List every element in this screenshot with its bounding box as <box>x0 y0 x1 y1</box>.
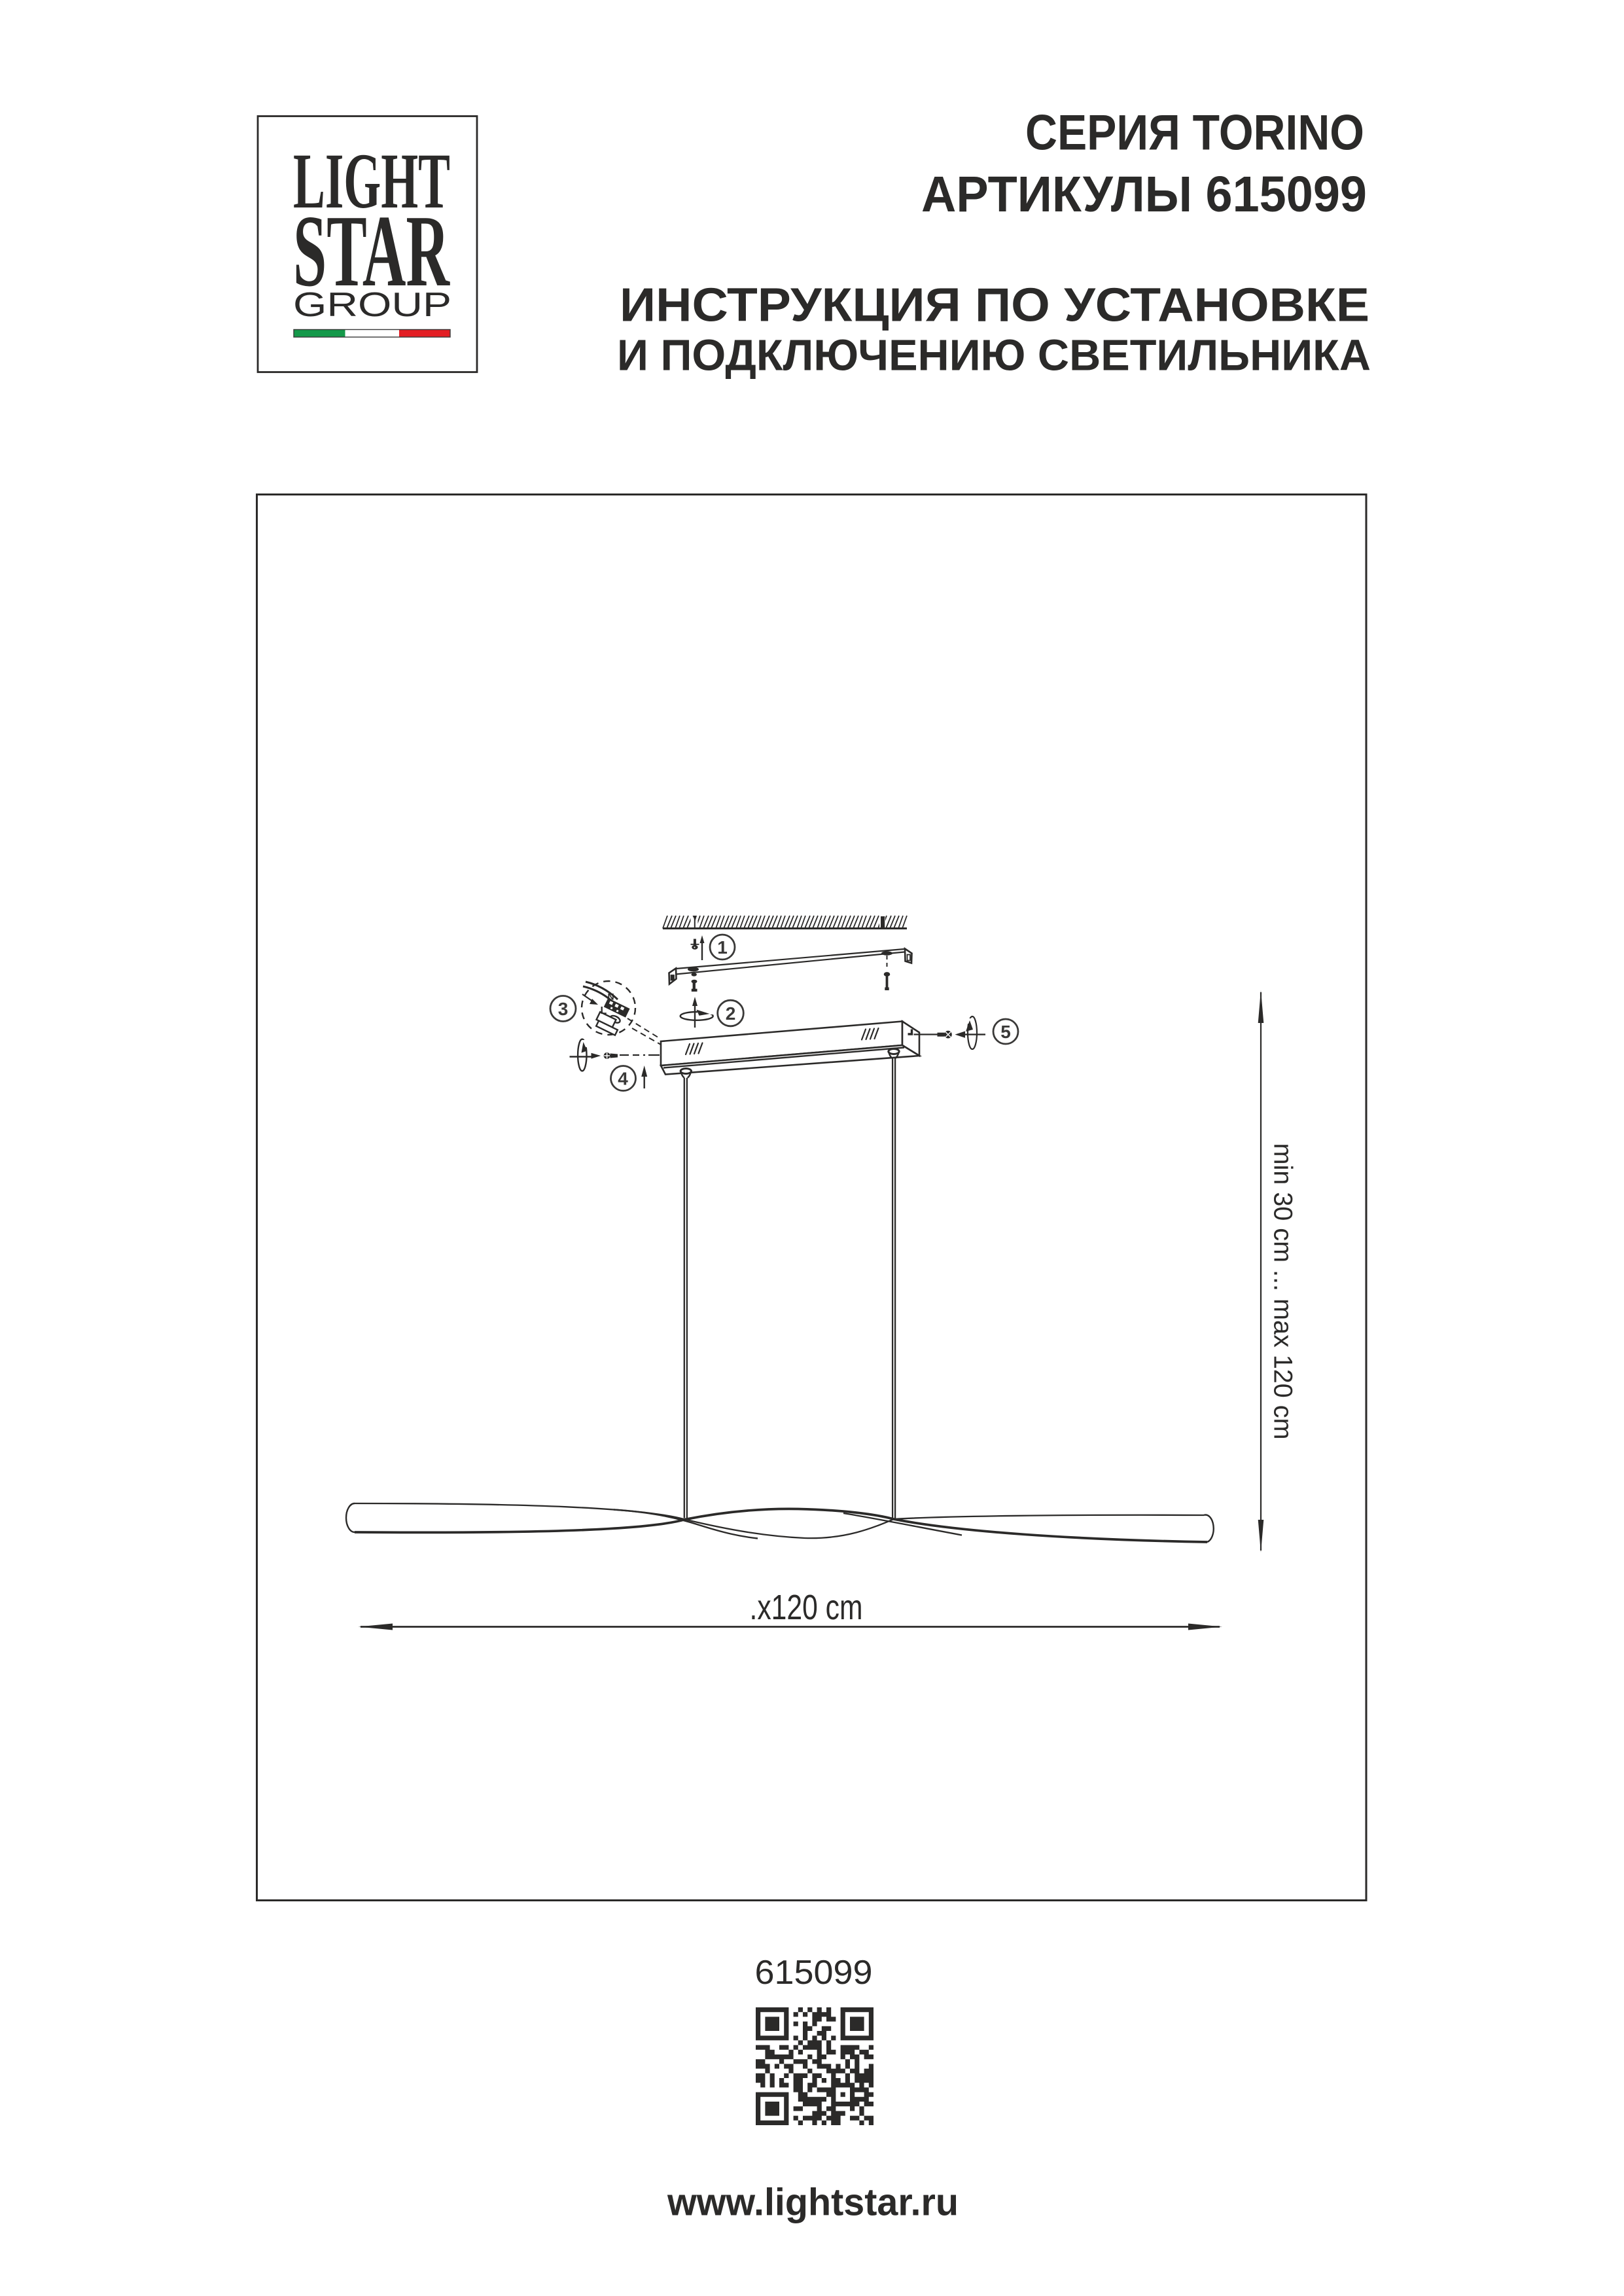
svg-text:GROUP: GROUP <box>293 286 451 324</box>
svg-text:www.lightstar.ru: www.lightstar.ru <box>667 2181 959 2224</box>
svg-text:ИНСТРУКЦИЯ ПО УСТАНОВКЕ: ИНСТРУКЦИЯ ПО УСТАНОВКЕ <box>620 279 1369 332</box>
svg-text:И ПОДКЛЮЧЕНИЮ СВЕТИЛЬНИКА: И ПОДКЛЮЧЕНИЮ СВЕТИЛЬНИКА <box>617 332 1371 380</box>
svg-text:4: 4 <box>618 1068 628 1088</box>
svg-text:min 30 cm ... max 120 cm: min 30 cm ... max 120 cm <box>1269 1143 1297 1440</box>
svg-text:3: 3 <box>558 999 569 1019</box>
svg-text:АРТИКУЛЫ 615099: АРТИКУЛЫ 615099 <box>921 166 1367 223</box>
svg-text:1: 1 <box>717 937 728 958</box>
svg-text:L: L <box>601 1005 607 1016</box>
svg-text:.x120 cm: .x120 cm <box>750 1588 863 1627</box>
svg-text:5: 5 <box>1000 1022 1011 1042</box>
svg-text:СЕРИЯ TORINO: СЕРИЯ TORINO <box>1025 105 1364 161</box>
svg-text:N: N <box>608 992 614 1002</box>
svg-text:2: 2 <box>726 1003 736 1024</box>
svg-text:615099: 615099 <box>755 1954 873 1992</box>
